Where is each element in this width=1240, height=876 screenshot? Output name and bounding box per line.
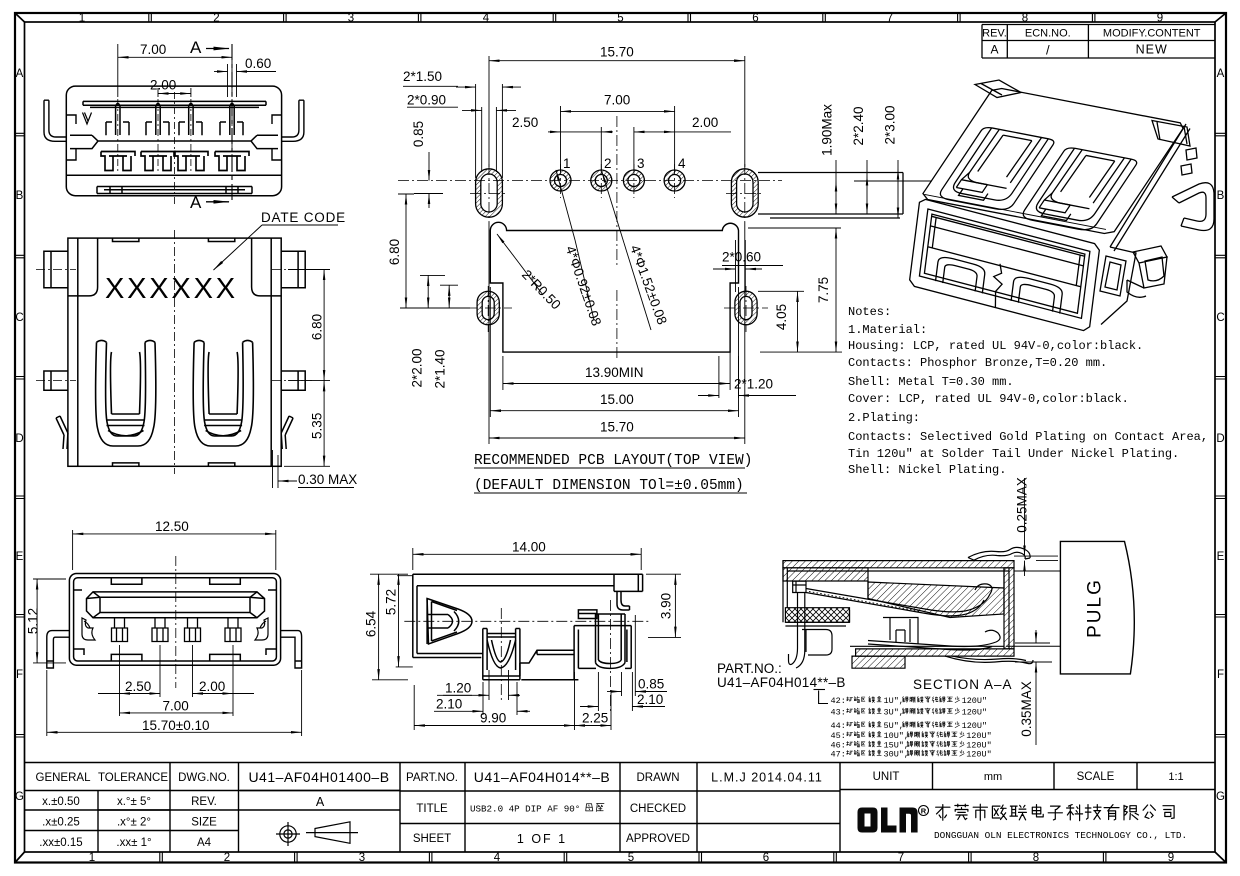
svg-text:Housing: LCP, rated UL 94V-0,c: Housing: LCP, rated UL 94V-0,color:black… [848,339,1143,353]
svg-text:SCALE: SCALE [1077,771,1115,783]
svg-text:9: 9 [1157,13,1163,25]
svg-text:SIZE: SIZE [191,817,217,829]
svg-text:4.05: 4.05 [774,304,789,330]
svg-text:6.80: 6.80 [387,239,402,265]
svg-text:F: F [16,669,23,681]
svg-text:.xx± 1°: .xx± 1° [116,837,151,849]
svg-text:5.35: 5.35 [310,413,325,439]
svg-text:A: A [1217,68,1225,80]
svg-text:1: 1 [563,156,571,171]
svg-text:7.00: 7.00 [163,699,189,714]
svg-text:6: 6 [752,13,758,25]
svg-text:4: 4 [678,156,686,171]
svg-text:5U",: 5U", [884,721,904,731]
svg-text:A: A [316,795,325,809]
svg-text:14.00: 14.00 [512,540,546,555]
svg-text:A: A [990,43,998,57]
svg-text:/: / [1046,43,1050,58]
svg-text:A: A [190,38,202,57]
svg-text:2*1.50: 2*1.50 [403,69,442,84]
svg-text:3.90: 3.90 [659,593,674,619]
svg-text:NEW: NEW [1136,43,1168,57]
svg-text:6: 6 [763,852,769,864]
svg-text:0.60: 0.60 [245,56,271,71]
svg-text:0.35MAX: 0.35MAX [1019,681,1034,737]
svg-text:47:: 47: [831,750,846,760]
svg-text:APPROVED: APPROVED [626,833,690,845]
svg-text:TOLERANCE: TOLERANCE [98,772,168,784]
svg-text:3: 3 [359,852,365,864]
svg-text:SHEET: SHEET [413,833,451,845]
svg-text:15.70: 15.70 [600,420,634,435]
svg-text:1.Material:: 1.Material: [848,323,927,337]
svg-text:0.30 MAX: 0.30 MAX [298,472,357,487]
svg-text:DONGGUAN OLN ELECTRONICS TECHN: DONGGUAN OLN ELECTRONICS TECHNOLOGY CO.,… [934,830,1187,841]
svg-text:10U",: 10U", [884,731,910,741]
svg-text:7: 7 [887,13,893,25]
svg-text:0.85: 0.85 [638,677,664,692]
svg-text:PART.NO.: PART.NO. [406,772,458,784]
svg-text:7.75: 7.75 [816,277,831,303]
svg-text:4: 4 [483,13,490,25]
svg-text:SECTION A–A: SECTION A–A [913,677,1013,692]
svg-text:B: B [1217,190,1225,202]
svg-text:Cover: LCP, rated UL 94V-0,col: Cover: LCP, rated UL 94V-0,color:black. [848,392,1129,406]
svg-text:USB2.0 4P DIP AF 90°: USB2.0 4P DIP AF 90° [470,804,580,815]
svg-text:1.20: 1.20 [445,681,471,696]
svg-text:REV.: REV. [191,796,217,808]
svg-text:A4: A4 [197,837,212,849]
svg-text:7: 7 [898,852,904,864]
svg-text:1:1: 1:1 [1168,771,1183,783]
svg-text:Shell: Nickel Plating.: Shell: Nickel Plating. [848,463,1006,477]
svg-text:x.°± 5°: x.°± 5° [117,796,151,808]
svg-text:30U",: 30U", [884,750,910,760]
svg-text:ECN.NO.: ECN.NO. [1025,28,1071,40]
svg-text:B: B [16,190,24,202]
svg-text:.x°± 2°: .x°± 2° [117,817,151,829]
svg-text:2.50: 2.50 [125,679,151,694]
svg-text:9: 9 [1168,852,1174,864]
svg-text:43:: 43: [831,708,846,718]
svg-text:8: 8 [1022,13,1028,25]
svg-text:120U": 120U" [962,721,988,731]
svg-text:E: E [16,551,24,563]
svg-text:PART.NO.:: PART.NO.: [717,661,782,676]
svg-text:2.Plating:: 2.Plating: [848,411,920,425]
svg-text:Contacts: Selectived Gold Plat: Contacts: Selectived Gold Plating on Con… [848,430,1208,444]
svg-text:6.80: 6.80 [310,314,325,340]
svg-text:U41–AF04H014**–B: U41–AF04H014**–B [474,769,610,785]
svg-text:D: D [1216,433,1224,445]
svg-text:2: 2 [213,13,219,25]
svg-text:0.25MAX: 0.25MAX [1015,477,1030,533]
svg-text:2.00: 2.00 [199,679,225,694]
svg-text:5: 5 [617,13,623,25]
svg-text:U41–AF04H014**–B: U41–AF04H014**–B [717,675,846,690]
svg-text:G: G [15,791,24,803]
svg-text:R: R [921,807,927,816]
svg-text:D: D [15,433,23,445]
svg-text:mm: mm [984,771,1002,783]
svg-text:15.70: 15.70 [600,45,634,60]
svg-text:6.54: 6.54 [364,610,379,637]
svg-text:2*1.20: 2*1.20 [734,377,773,392]
svg-text:1: 1 [79,13,85,25]
svg-text:3U",: 3U", [884,708,904,718]
svg-text:120U": 120U" [966,731,992,741]
svg-text:TITLE: TITLE [416,803,448,815]
svg-text:120U": 120U" [962,708,988,718]
svg-text:1U",: 1U", [884,696,904,706]
svg-text:2.25: 2.25 [582,711,608,726]
svg-text:2*0.90: 2*0.90 [407,93,446,108]
svg-text:DWG.NO.: DWG.NO. [178,772,230,784]
svg-text:15.70±0.10: 15.70±0.10 [142,718,209,733]
svg-text:Notes:: Notes: [848,305,891,319]
svg-text:.xx±0.15: .xx±0.15 [39,837,82,849]
svg-text:45:: 45: [831,731,846,741]
svg-text:L.M.J 2014.04.11: L.M.J 2014.04.11 [711,771,823,785]
svg-text:Shell: Metal T=0.30 mm.: Shell: Metal T=0.30 mm. [848,375,1014,389]
svg-text:7.00: 7.00 [604,93,630,108]
svg-text:13.90MIN: 13.90MIN [585,365,644,380]
svg-text:1 OF 1: 1 OF 1 [517,832,567,846]
svg-text:E: E [1217,551,1225,563]
svg-text:CHECKED: CHECKED [630,803,686,815]
svg-text:U41–AF04H01400–B: U41–AF04H01400–B [248,769,389,785]
svg-text:2*2.40: 2*2.40 [851,106,866,145]
svg-text:8: 8 [1033,852,1039,864]
svg-text:2*3.00: 2*3.00 [882,105,897,144]
svg-text:RECOMMENDED PCB LAYOUT(TOP VIE: RECOMMENDED PCB LAYOUT(TOP VIEW) [474,453,752,469]
svg-text:4: 4 [494,852,501,864]
svg-text:3: 3 [348,13,354,25]
svg-text:120U": 120U" [966,750,992,760]
svg-text:GENERAL: GENERAL [36,772,92,784]
svg-text:2.10: 2.10 [436,697,462,712]
svg-text:2*1.40: 2*1.40 [433,349,448,388]
svg-text:PULG: PULG [1085,578,1106,638]
svg-text:A: A [190,193,202,212]
svg-text:0.85: 0.85 [411,121,426,147]
svg-text:DRAWN: DRAWN [636,772,679,784]
svg-text:9.90: 9.90 [480,711,506,726]
svg-text:2.00: 2.00 [150,78,176,93]
svg-text:2.00: 2.00 [692,115,718,130]
svg-text:120U": 120U" [962,696,988,706]
svg-text:2: 2 [604,156,612,171]
svg-text:UNIT: UNIT [873,771,900,783]
svg-text:12.50: 12.50 [155,519,189,534]
svg-text:A: A [16,68,24,80]
svg-text:2*2.00: 2*2.00 [410,348,425,387]
svg-text:2*0.60: 2*0.60 [722,250,761,265]
svg-text:2.10: 2.10 [637,692,663,707]
svg-text:1: 1 [89,852,95,864]
svg-text:42:: 42: [831,696,846,706]
svg-text:MODIFY.CONTENT: MODIFY.CONTENT [1103,28,1201,40]
svg-text:7.00: 7.00 [140,42,166,57]
svg-text:XXXXXX: XXXXXX [105,273,238,305]
svg-text:15.00: 15.00 [600,392,634,407]
svg-text:1.90Max: 1.90Max [820,104,835,156]
svg-text:REV.: REV. [982,28,1007,40]
svg-text:x.±0.50: x.±0.50 [42,796,80,808]
svg-text:2.50: 2.50 [512,115,538,130]
svg-text:F: F [1217,669,1224,681]
svg-text:C: C [1216,312,1224,324]
svg-text:Contacts: Phosphor Bronze,T=0.: Contacts: Phosphor Bronze,T=0.20 mm. [848,356,1107,370]
svg-text:44:: 44: [831,721,846,731]
svg-text:Tin 120u" at Solder Tail Under: Tin 120u" at Solder Tail Under Nickel Pl… [848,447,1179,461]
svg-text:(DEFAULT DIMENSION TOl=±0.05mm: (DEFAULT DIMENSION TOl=±0.05mm) [474,478,744,494]
svg-text:3: 3 [637,156,645,171]
svg-text:.x±0.25: .x±0.25 [42,817,80,829]
svg-text:5.12: 5.12 [26,608,41,634]
svg-text:2: 2 [224,852,230,864]
svg-text:G: G [1216,791,1225,803]
svg-text:5.72: 5.72 [384,589,399,615]
svg-text:DATE CODE: DATE CODE [261,210,346,225]
svg-text:5: 5 [628,852,634,864]
svg-text:C: C [15,312,23,324]
